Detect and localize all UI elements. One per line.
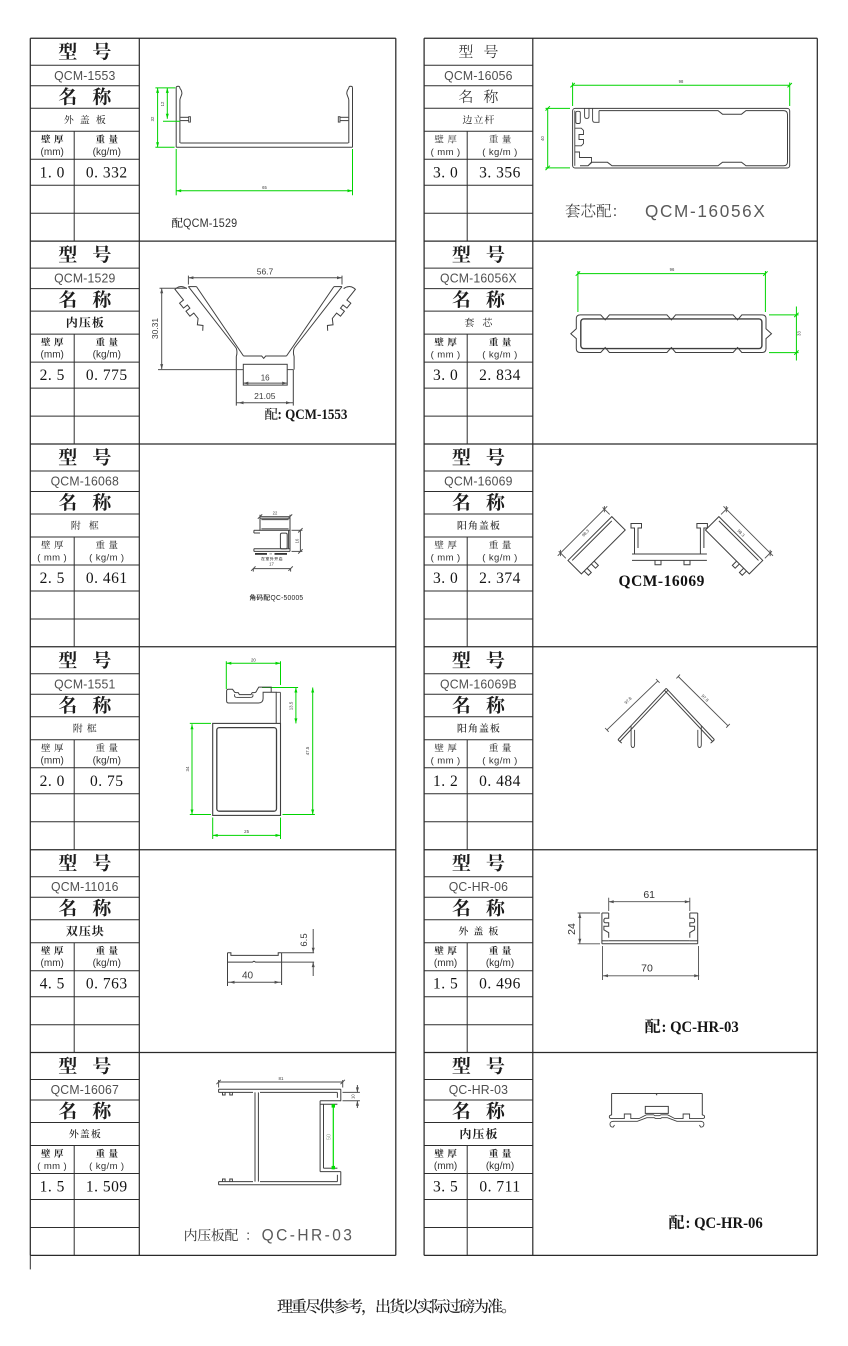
svg-text:(mm): (mm) (41, 350, 64, 361)
svg-text:2. 5: 2. 5 (40, 570, 65, 587)
svg-text:56.7: 56.7 (257, 267, 274, 277)
svg-text:3. 0: 3. 0 (433, 367, 458, 384)
svg-text:33: 33 (796, 331, 801, 336)
svg-text:( kg/m ): ( kg/m ) (482, 755, 517, 766)
svg-text:QCM-16069: QCM-16069 (444, 473, 512, 489)
svg-text:( mm ): ( mm ) (37, 1161, 67, 1172)
svg-text:QCM-16068: QCM-16068 (51, 473, 119, 489)
svg-text:0. 75: 0. 75 (90, 773, 124, 790)
svg-text:0. 496: 0. 496 (479, 976, 521, 993)
svg-text:QCM-16067: QCM-16067 (51, 1082, 119, 1098)
svg-text:10: 10 (351, 1094, 356, 1099)
svg-text:2. 5: 2. 5 (40, 367, 65, 384)
svg-text:( kg/m ): ( kg/m ) (89, 553, 124, 564)
svg-text:98: 98 (679, 79, 684, 84)
svg-text:1. 5: 1. 5 (40, 1179, 65, 1196)
svg-text:1. 5: 1. 5 (433, 976, 458, 993)
svg-text:40: 40 (242, 970, 254, 981)
svg-text:61: 61 (643, 889, 655, 901)
svg-text:QCM-16069B: QCM-16069B (440, 676, 517, 692)
svg-text:QCM-11016: QCM-11016 (51, 879, 119, 895)
svg-text:(mm): (mm) (41, 958, 64, 969)
svg-text:98.3: 98.3 (581, 528, 591, 538)
svg-text:( mm ): ( mm ) (431, 755, 461, 766)
svg-text:QCM-16056: QCM-16056 (444, 67, 512, 83)
svg-text:0. 332: 0. 332 (86, 164, 128, 181)
svg-text:0. 711: 0. 711 (479, 1179, 520, 1196)
svg-text:12: 12 (160, 101, 165, 106)
svg-text:2. 0: 2. 0 (40, 773, 65, 790)
svg-text:81: 81 (279, 1076, 284, 1081)
svg-text:20: 20 (251, 657, 256, 662)
svg-text:(kg/m): (kg/m) (93, 958, 121, 969)
svg-text:0. 461: 0. 461 (86, 570, 128, 587)
svg-text:(mm): (mm) (41, 755, 64, 766)
svg-text:: QCM-1553: : QCM-1553 (278, 407, 348, 423)
svg-text:: QC-HR-06: : QC-HR-06 (686, 1214, 764, 1232)
svg-text:: QC-HR-03: : QC-HR-03 (662, 1018, 740, 1036)
svg-text:2. 834: 2. 834 (479, 367, 521, 384)
svg-text:( kg/m ): ( kg/m ) (89, 1161, 124, 1172)
svg-text:47.5: 47.5 (305, 746, 310, 755)
svg-text:97.8: 97.8 (700, 693, 710, 703)
svg-text:4. 5: 4. 5 (40, 976, 65, 993)
svg-text:( mm ): ( mm ) (431, 147, 461, 158)
svg-text:0. 775: 0. 775 (86, 367, 128, 384)
svg-text:(kg/m): (kg/m) (486, 958, 514, 969)
svg-text:QCM-16056X: QCM-16056X (440, 270, 517, 286)
svg-text:1. 2: 1. 2 (433, 773, 458, 790)
svg-text:QCM-16069: QCM-16069 (619, 573, 705, 590)
svg-text:( mm ): ( mm ) (431, 350, 461, 361)
svg-text:3. 0: 3. 0 (433, 570, 458, 587)
svg-text:( kg/m ): ( kg/m ) (482, 350, 517, 361)
svg-text:(mm): (mm) (434, 1161, 457, 1172)
svg-text:30.31: 30.31 (150, 318, 160, 340)
svg-text:3. 356: 3. 356 (479, 164, 521, 181)
svg-text:40: 40 (540, 136, 545, 141)
svg-text:98.3: 98.3 (736, 528, 746, 538)
svg-text:2. 374: 2. 374 (479, 570, 521, 587)
svg-text:22: 22 (273, 511, 278, 516)
svg-text:50: 50 (327, 1134, 333, 1140)
svg-text:21.05: 21.05 (254, 391, 276, 401)
svg-text:17: 17 (269, 562, 274, 567)
svg-text:( mm ): ( mm ) (37, 553, 67, 564)
svg-text:(kg/m): (kg/m) (93, 755, 121, 766)
svg-text:16: 16 (261, 374, 270, 383)
svg-text:( kg/m ): ( kg/m ) (482, 147, 517, 158)
svg-text:QCM-1529: QCM-1529 (183, 218, 237, 230)
svg-text:24: 24 (566, 923, 578, 935)
svg-text:34: 34 (185, 766, 190, 771)
svg-text:( kg/m ): ( kg/m ) (482, 553, 517, 564)
svg-text:QC-HR-03: QC-HR-03 (449, 1082, 508, 1098)
svg-text:(kg/m): (kg/m) (93, 147, 121, 158)
svg-text:3. 0: 3. 0 (433, 164, 458, 181)
svg-text:70: 70 (641, 963, 653, 975)
svg-text:QCM-1551: QCM-1551 (54, 676, 115, 692)
svg-text:QC-HR-06: QC-HR-06 (449, 879, 508, 895)
svg-text:1. 509: 1. 509 (86, 1179, 128, 1196)
svg-text:(kg/m): (kg/m) (93, 350, 121, 361)
svg-text:QCM-1553: QCM-1553 (54, 67, 115, 83)
svg-text:97.8: 97.8 (623, 695, 633, 705)
svg-text:6.5: 6.5 (299, 933, 310, 946)
svg-text:( mm ): ( mm ) (431, 553, 461, 564)
svg-text:(mm): (mm) (434, 958, 457, 969)
svg-text:65: 65 (262, 185, 267, 190)
svg-text:QCM-16056X: QCM-16056X (645, 201, 766, 221)
svg-text:QCM-1529: QCM-1529 (54, 270, 115, 286)
svg-text:QC-HR-03: QC-HR-03 (262, 1227, 355, 1245)
svg-text:(kg/m): (kg/m) (486, 1161, 514, 1172)
svg-text:(mm): (mm) (41, 147, 64, 158)
svg-text:16: 16 (295, 538, 300, 543)
svg-text:13.5: 13.5 (288, 701, 293, 710)
svg-text:32: 32 (150, 116, 155, 121)
svg-text:96: 96 (670, 267, 675, 272)
svg-text:0. 484: 0. 484 (479, 773, 521, 790)
svg-text:0. 763: 0. 763 (86, 976, 128, 993)
svg-text:1. 0: 1. 0 (40, 164, 65, 181)
svg-text:25: 25 (244, 829, 249, 834)
svg-text:QC-50005: QC-50005 (271, 595, 304, 602)
svg-text:3. 5: 3. 5 (433, 1179, 458, 1196)
